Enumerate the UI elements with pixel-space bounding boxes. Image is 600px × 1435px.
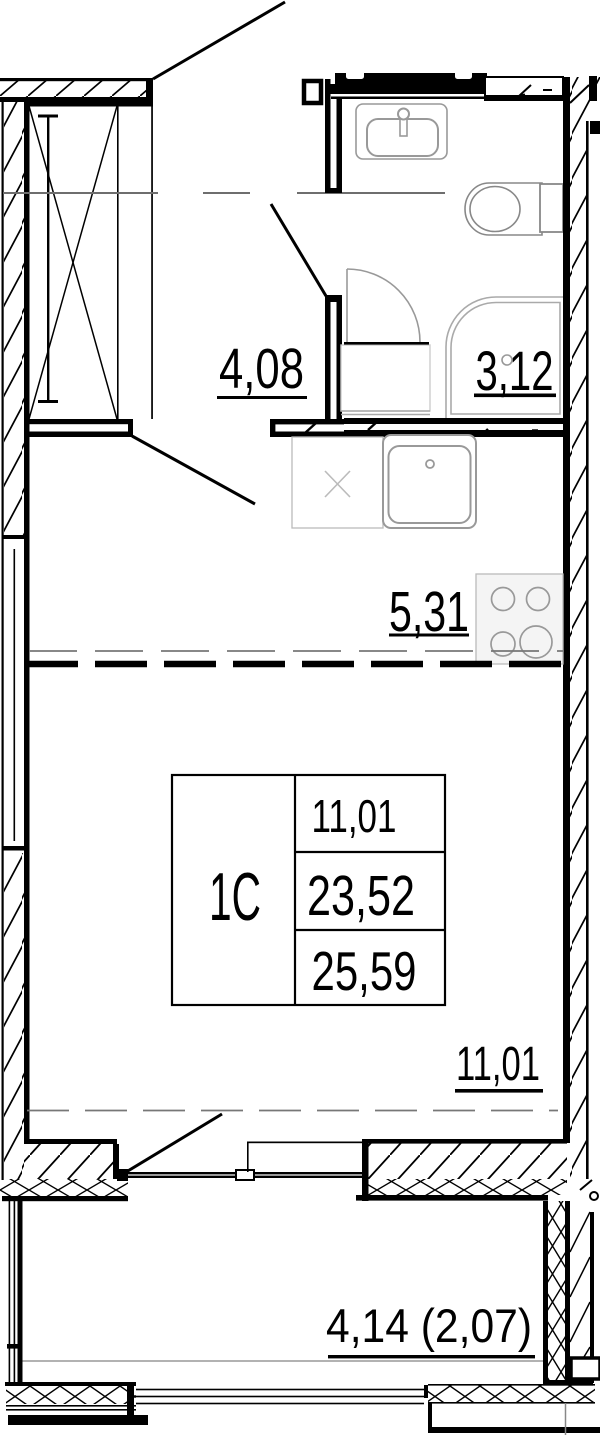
svg-text:11,01: 11,01 <box>456 1038 540 1091</box>
svg-text:4,08: 4,08 <box>219 337 304 401</box>
svg-text:3,12: 3,12 <box>476 339 554 402</box>
svg-text:1С: 1С <box>209 859 261 935</box>
svg-text:23,52: 23,52 <box>307 864 415 928</box>
svg-text:11,01: 11,01 <box>312 790 397 842</box>
svg-text:25,59: 25,59 <box>312 940 417 1002</box>
svg-text:4,14 (2,07): 4,14 (2,07) <box>326 1299 532 1352</box>
